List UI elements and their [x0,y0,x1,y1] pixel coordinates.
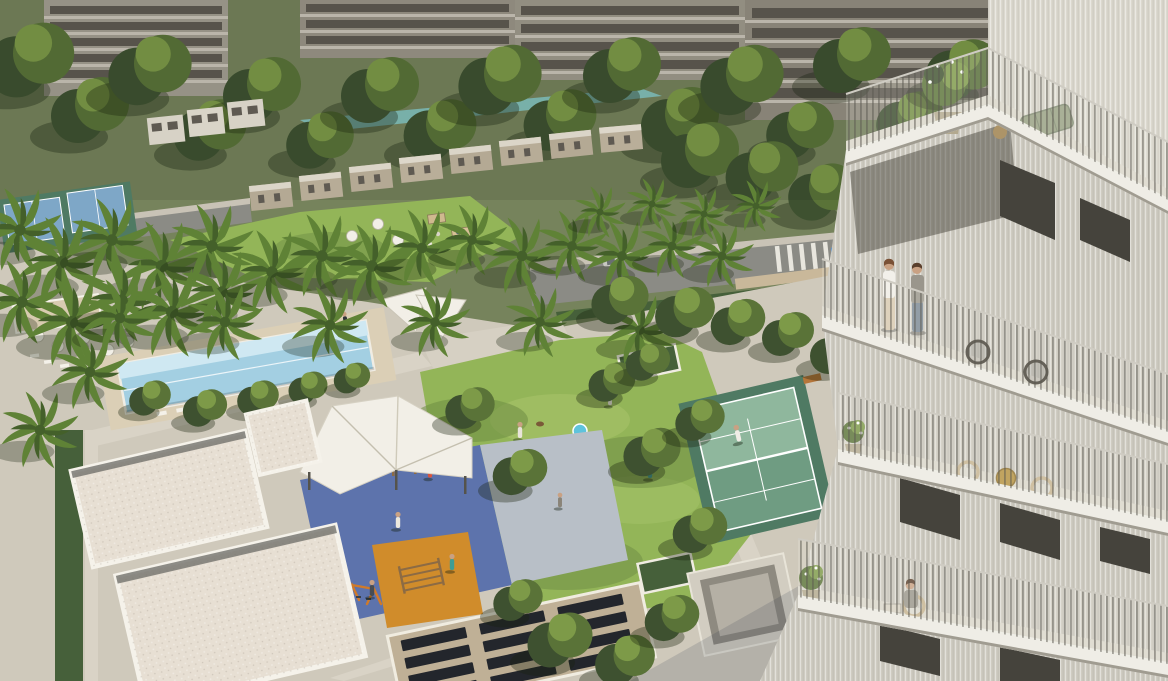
umbrella [373,219,384,230]
white-villa [187,107,226,138]
white-villa [147,115,186,146]
render-canvas [0,0,1168,681]
rubber-surface-orange [372,532,483,628]
aerial-community-render [0,0,1168,681]
dog [536,422,544,427]
white-villa [227,99,266,130]
umbrella [347,231,358,242]
